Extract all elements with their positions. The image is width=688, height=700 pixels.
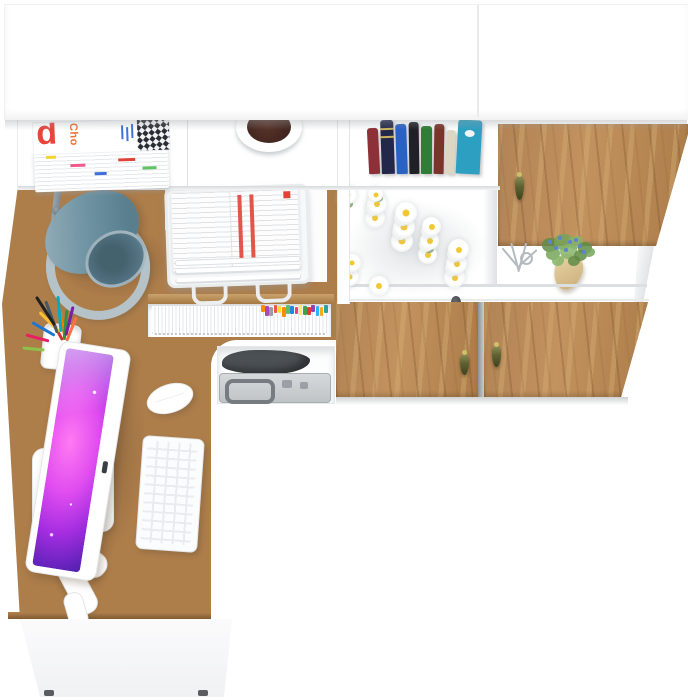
file-tab	[286, 305, 290, 314]
book-spine	[421, 126, 432, 174]
magazine-edge-chip	[70, 164, 85, 168]
daisy-bouquet	[338, 182, 488, 300]
hutch-top-panel	[4, 4, 688, 120]
file-tab	[311, 305, 315, 312]
magazine-edge-chip	[95, 172, 107, 175]
door-seam	[478, 302, 484, 397]
magazine-edge-chip	[142, 166, 156, 169]
file-tab	[261, 305, 265, 312]
plant-blue-flower	[548, 240, 552, 244]
paper-red-stripe-2	[249, 194, 255, 258]
keyboard-keys	[141, 440, 198, 545]
file-niche	[148, 304, 331, 337]
daisy-center	[427, 238, 433, 244]
lower-cabinet-door-right	[484, 302, 652, 397]
mouse-seam	[155, 392, 184, 402]
daisy-flower	[369, 276, 389, 296]
file-tab	[299, 305, 303, 315]
daisy-center	[403, 210, 410, 217]
magazine-edge-chip	[46, 156, 56, 159]
book-gold-band	[381, 136, 394, 138]
desk-front-panel	[18, 619, 232, 697]
file-tab	[265, 306, 269, 316]
daisy-flower	[448, 239, 469, 260]
flower-cubby-right-shade	[483, 188, 497, 284]
daisy-center	[429, 224, 435, 230]
plant-blue-flower	[564, 248, 568, 252]
lower-cabinet-door-left	[336, 302, 478, 397]
case-latch-2	[300, 382, 308, 389]
dark-bag	[222, 350, 310, 374]
paper-red-mark	[283, 191, 290, 198]
file-tab	[282, 307, 286, 317]
plant-blue-flower	[582, 250, 586, 254]
case-latch	[282, 380, 292, 388]
flower-cubby-wall	[337, 118, 350, 304]
paper-red-stripe	[237, 195, 243, 259]
keyboard	[135, 435, 205, 553]
daisy-center	[456, 247, 462, 253]
daisy-center	[373, 192, 378, 197]
plant-blue-flower	[568, 240, 572, 244]
file-tab	[295, 307, 299, 314]
upper-cabinet-door	[498, 124, 688, 246]
twig-ring	[520, 252, 533, 265]
magazine-edge-chip	[118, 158, 135, 162]
desk-front-edge	[8, 612, 230, 619]
daisy-center	[376, 283, 382, 289]
plant-blue-flower	[578, 244, 582, 248]
file-tab-row	[261, 305, 329, 316]
file-tab	[303, 306, 307, 315]
scene-desk-wall-unit-top-view: d Cho	[0, 0, 688, 700]
pencil	[22, 347, 44, 352]
daisy-center	[350, 261, 355, 266]
daisy-flower	[395, 202, 417, 224]
desk-foot-left	[44, 690, 54, 696]
book-emblem	[465, 130, 475, 138]
file-tab	[316, 306, 320, 316]
pull-screw	[462, 350, 467, 355]
tray-leg-right	[255, 282, 292, 303]
unit-base-shadow	[336, 397, 628, 405]
hutch-top-seam	[477, 5, 479, 117]
silver-twigs	[496, 234, 544, 268]
pull-screw	[494, 342, 499, 347]
plant-blue-flower	[554, 246, 558, 250]
case-handle	[225, 379, 275, 404]
tray-leg-left	[191, 284, 228, 305]
daisy-flower	[422, 217, 441, 236]
book-spine	[395, 124, 408, 174]
under-desk-compartment	[217, 346, 335, 404]
file-tab	[324, 305, 328, 313]
file-tab	[320, 307, 324, 316]
book-spine	[434, 124, 445, 174]
file-tab	[290, 306, 294, 314]
document-tray	[164, 182, 310, 305]
silver-case	[219, 373, 331, 403]
plant-blue-flower	[558, 236, 562, 240]
plant-blue-flower	[574, 238, 578, 242]
monitor-logo-slot	[101, 461, 108, 474]
file-tab	[278, 306, 282, 313]
file-tab	[274, 305, 278, 313]
file-tab	[307, 307, 311, 315]
desk-foot-right	[198, 690, 208, 696]
file-tab	[269, 307, 273, 316]
book-spine	[445, 130, 456, 174]
pull-screw	[517, 172, 522, 177]
book-spine	[367, 128, 380, 175]
